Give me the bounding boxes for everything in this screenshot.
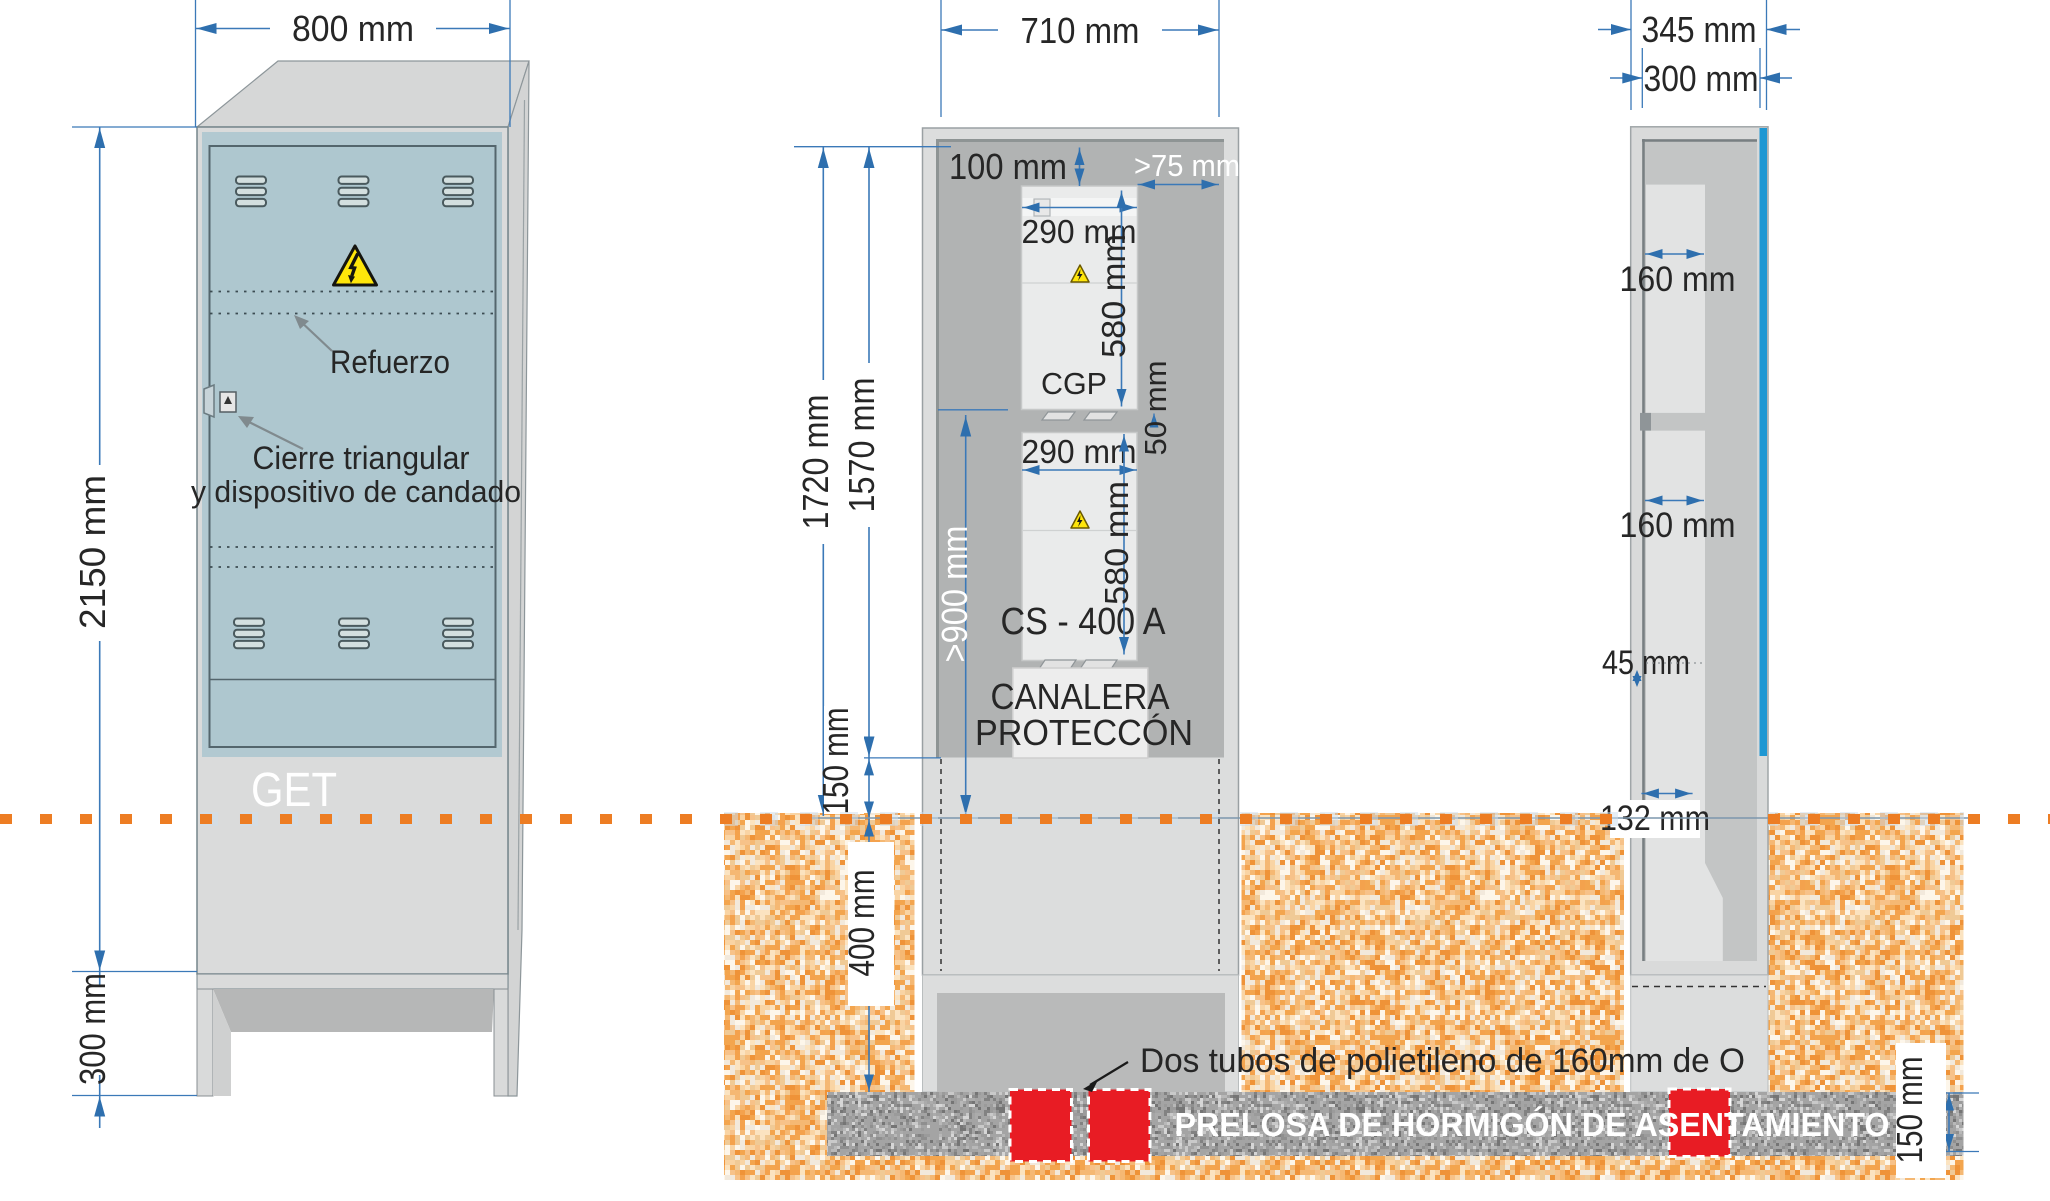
svg-text:Cierre triangular: Cierre triangular	[253, 440, 470, 476]
svg-text:Dos tubos de polietileno de 16: Dos tubos de polietileno de 160mm de O	[1140, 1042, 1745, 1080]
svg-text:580 mm: 580 mm	[1095, 234, 1132, 358]
svg-text:345 mm: 345 mm	[1642, 9, 1757, 50]
svg-text:PRELOSA DE HORMIGÓN DE ASENTAM: PRELOSA DE HORMIGÓN DE ASENTAMIENTO	[1175, 1106, 1890, 1143]
svg-text:300 mm: 300 mm	[72, 973, 113, 1085]
svg-text:>75 mm: >75 mm	[1134, 148, 1240, 183]
svg-text:2150 mm: 2150 mm	[72, 475, 113, 629]
svg-text:300 mm: 300 mm	[1644, 58, 1759, 99]
svg-text:400 mm: 400 mm	[841, 870, 882, 977]
svg-text:1720 mm: 1720 mm	[795, 395, 836, 530]
svg-text:160 mm: 160 mm	[1620, 260, 1736, 299]
svg-text:CGP: CGP	[1041, 366, 1107, 401]
svg-text:PROTECCÓN: PROTECCÓN	[975, 712, 1193, 753]
svg-text:50 mm: 50 mm	[1138, 361, 1173, 456]
svg-text:1570 mm: 1570 mm	[841, 378, 882, 513]
svg-text:580 mm: 580 mm	[1098, 481, 1135, 605]
svg-text:150 mm: 150 mm	[1889, 1057, 1930, 1164]
svg-text:y dispositivo de candado: y dispositivo de candado	[191, 474, 521, 509]
svg-text:CANALERA: CANALERA	[991, 676, 1170, 717]
svg-text:160 mm: 160 mm	[1620, 506, 1736, 545]
svg-text:>900 mm: >900 mm	[934, 526, 975, 663]
svg-text:800 mm: 800 mm	[292, 8, 414, 49]
svg-text:100 mm: 100 mm	[949, 146, 1067, 187]
svg-text:150 mm: 150 mm	[815, 708, 856, 815]
svg-text:GET: GET	[251, 764, 337, 817]
svg-text:CS - 400 A: CS - 400 A	[1001, 601, 1167, 643]
svg-text:Refuerzo: Refuerzo	[330, 344, 450, 380]
svg-text:710 mm: 710 mm	[1021, 10, 1140, 51]
